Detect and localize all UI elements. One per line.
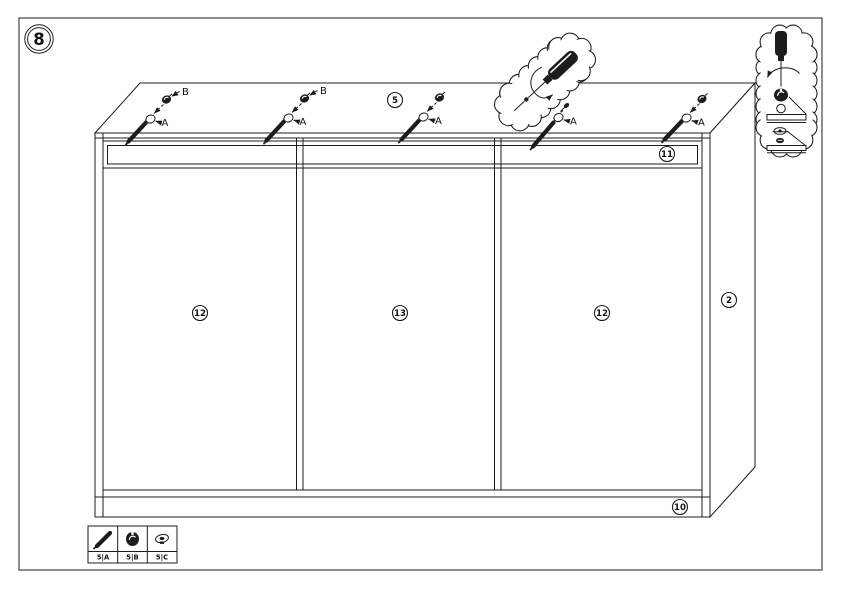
svg-text:10: 10 xyxy=(674,503,686,513)
legend-code: 5|B xyxy=(126,554,138,563)
svg-text:12: 12 xyxy=(596,309,608,319)
svg-text:12: 12 xyxy=(194,309,206,319)
assembly-diagram: 8 11 xyxy=(0,0,842,595)
pilot-hole-icon xyxy=(777,104,786,113)
part-label-bottom-rail: 10 xyxy=(673,500,688,515)
cam-lock-icon xyxy=(126,532,139,546)
hole-label: A xyxy=(300,117,307,128)
svg-text:13: 13 xyxy=(394,309,406,319)
door-left: 12 xyxy=(193,306,208,321)
door-right: 12 xyxy=(595,306,610,321)
door-middle: 13 xyxy=(393,306,408,321)
part-label-side-panel: 2 xyxy=(722,293,737,308)
fitting-label: B xyxy=(320,86,327,97)
hardware-legend: 5|A 5|B 5|C xyxy=(88,526,177,563)
legend-code: 5|C xyxy=(156,554,168,563)
part-label-top-rail: 11 xyxy=(660,147,675,162)
legend-item-cam-lock: 5|B xyxy=(126,532,139,563)
cam-lock-icon xyxy=(774,89,788,102)
front-face: 11 10 12 13 12 xyxy=(95,133,710,517)
top-panel xyxy=(95,83,755,133)
legend-item-screw: 5|A xyxy=(94,533,110,563)
cabinet: 11 10 12 13 12 xyxy=(95,83,755,517)
screw-icon xyxy=(97,533,110,546)
cam-detail-bubble xyxy=(756,25,817,157)
cam-screw-icon xyxy=(155,533,169,544)
screw-head-icon xyxy=(776,138,784,143)
part-label-top-panel: 5 xyxy=(388,93,403,108)
hole-label: A xyxy=(698,118,705,129)
panel-edge xyxy=(767,146,806,151)
hole-label: A xyxy=(570,117,577,128)
bottom-rail: 10 xyxy=(673,500,688,515)
svg-text:5: 5 xyxy=(392,96,398,106)
instruction-page: 8 11 xyxy=(0,0,842,595)
svg-text:11: 11 xyxy=(661,150,673,160)
hole-label: A xyxy=(435,116,442,127)
legend-item-cam-screw: 5|C xyxy=(155,533,169,562)
hole-label: A xyxy=(162,118,169,129)
step-number: 8 xyxy=(33,30,44,49)
legend-code: 5|A xyxy=(97,554,110,563)
panel-edge xyxy=(767,115,806,121)
fitting-label: B xyxy=(182,87,189,98)
step-badge: 8 xyxy=(25,25,53,53)
svg-text:2: 2 xyxy=(726,296,732,306)
